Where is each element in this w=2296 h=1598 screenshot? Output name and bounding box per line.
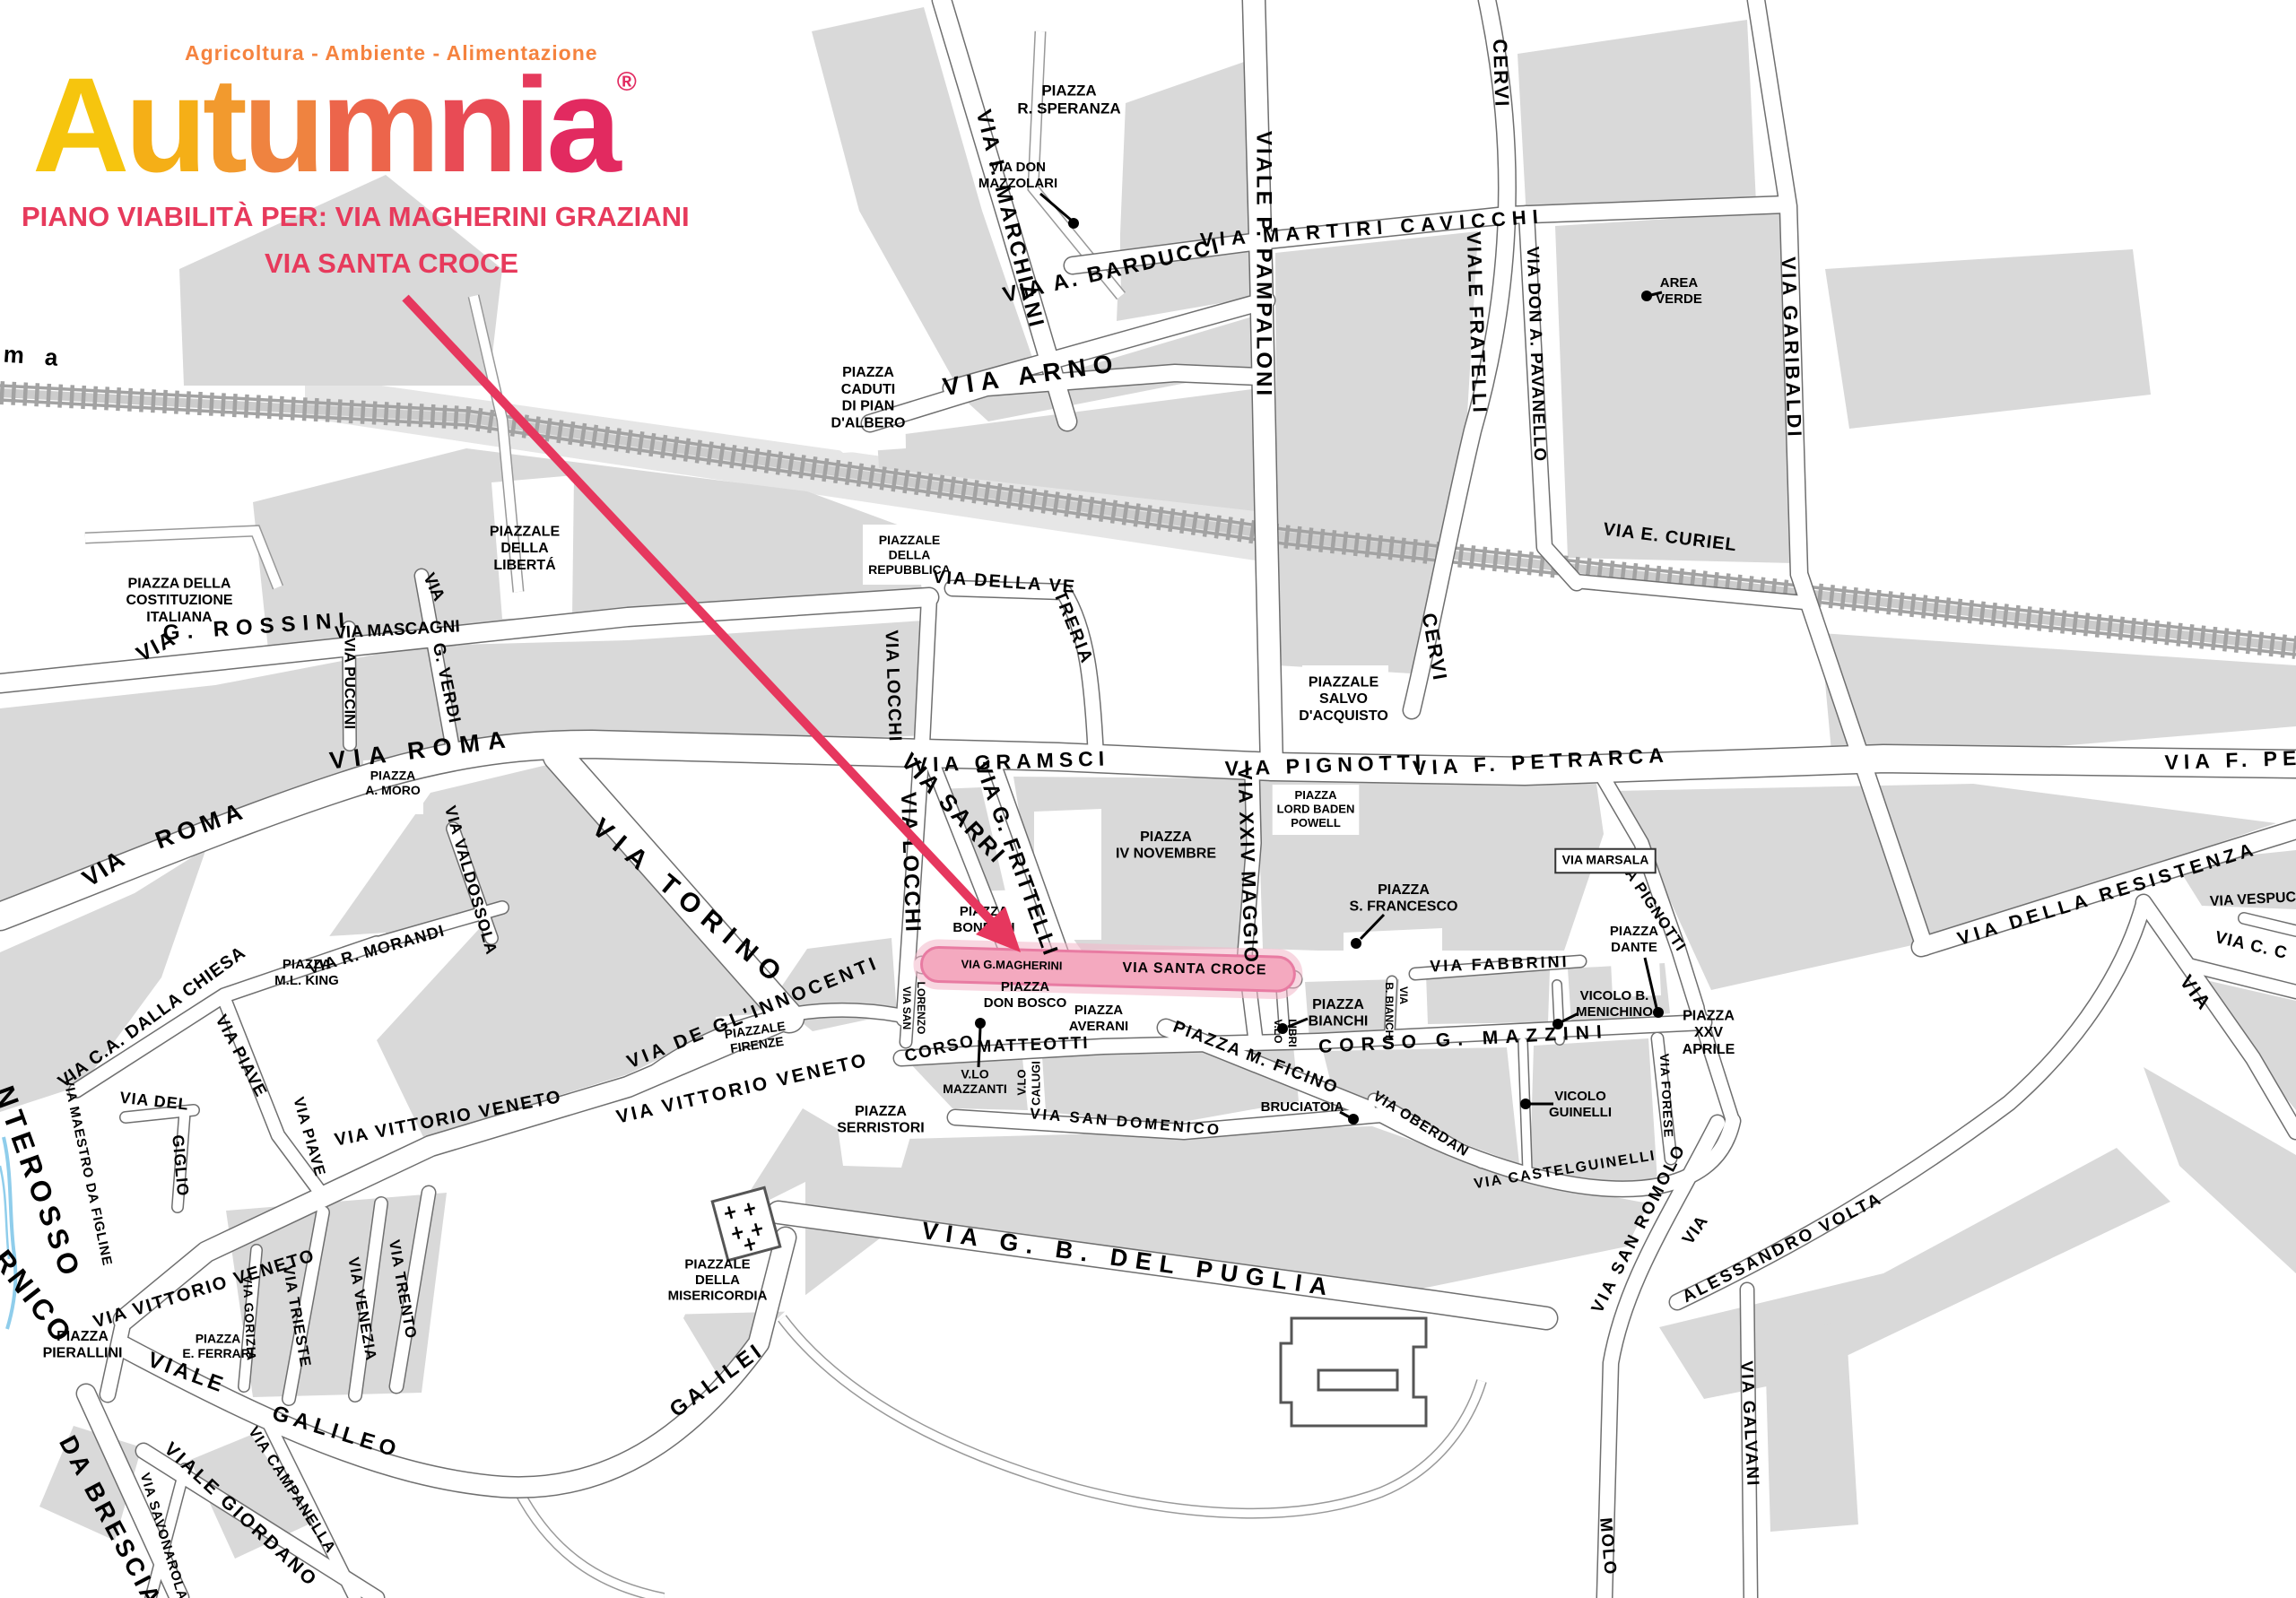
logo-letter: u — [125, 49, 203, 200]
place-label: VICOLOGUINELLI — [1549, 1089, 1612, 1120]
place-label-line: AREA — [1660, 275, 1699, 291]
street-label: LIBRI — [1286, 1019, 1299, 1047]
street-label: VIA SANTA CROCE — [1122, 960, 1266, 978]
logo-letter: a — [546, 49, 616, 200]
place-label-line: BIANCHI — [1309, 1014, 1369, 1029]
street-label: VIA PUCCINI — [342, 638, 359, 729]
place-label-line: PIAZZA — [370, 768, 416, 782]
place-label-line: DELLA — [695, 1272, 740, 1288]
place-label-line: PIAZZA — [283, 957, 331, 972]
place-label-line: VICOLO B. — [1580, 988, 1649, 1003]
plan-title-line2: VIA SANTA CROCE — [265, 248, 518, 280]
poi-dot — [1653, 1007, 1664, 1018]
place-label-line: PIAZZA — [1001, 979, 1049, 994]
place-label-line: E. FERRARI — [182, 1346, 253, 1360]
place-label-line: IV NOVEMBRE — [1116, 847, 1216, 862]
place-label: BRUCIATOIA — [1261, 1099, 1344, 1115]
street-label: VIA F. PET — [2164, 745, 2296, 774]
place-label-line: BRUCIATOIA — [1261, 1099, 1344, 1115]
poi-dot — [1348, 1114, 1359, 1125]
place-label-line: LIBERTÁ — [493, 556, 556, 573]
place-label-line: DI PIAN — [842, 399, 895, 414]
logo-letter: t — [203, 49, 243, 200]
place-label-line: PIAZZA — [1041, 82, 1096, 99]
place-label-line: PIAZZALE — [490, 524, 561, 539]
place-label-line: V.LO — [961, 1066, 988, 1081]
place-label-line: REPUBBLICA — [868, 562, 951, 577]
place-label-line: PIAZZA — [1683, 1008, 1735, 1023]
logo-letter: i — [514, 49, 547, 200]
place-label-line: APRILE — [1683, 1042, 1735, 1057]
place-label-line: MAZZANTI — [943, 1081, 1007, 1096]
place-label-line: PIAZZA — [1140, 829, 1192, 845]
place-label: PIAZZABIANCHI — [1309, 997, 1369, 1029]
place-label-line: A. MORO — [365, 783, 421, 797]
place-label-line: PIAZZA — [1312, 997, 1364, 1012]
place-label-line: GUINELLI — [1549, 1105, 1612, 1120]
place-label: VICOLO B.MENICHINO — [1576, 988, 1653, 1020]
poi-dot — [1068, 218, 1079, 229]
place-label-line: PIAZZA — [842, 365, 894, 380]
place-label-line: CADUTI — [841, 382, 895, 397]
street-label: B. BIANCHI — [1383, 982, 1396, 1040]
place-label-line: PIERALLINI — [43, 1346, 123, 1361]
plan-title-line1: PIANO VIABILITÀ PER: VIA MAGHERINI GRAZI… — [22, 201, 690, 233]
street-label: CALUGI — [1029, 1061, 1042, 1106]
place-label-line: D'ACQUISTO — [1299, 708, 1388, 724]
poi-dot — [975, 1018, 986, 1029]
place-label-line: S. FRANCESCO — [1350, 899, 1458, 915]
place-label: PIAZZAAVERANI — [1069, 1003, 1128, 1034]
logo-letter: n — [436, 49, 514, 200]
place-label: PIAZZADANTE — [1610, 924, 1658, 955]
place-label-line: SERRISTORI — [837, 1121, 925, 1136]
place-label: AREAVERDE — [1656, 275, 1702, 307]
place-label: PIAZZAA. MORO — [365, 768, 421, 797]
place-label-line: PIAZZA — [1074, 1003, 1123, 1018]
street-label: V.LO — [1272, 1020, 1284, 1044]
place-label-line: PIAZZA — [855, 1104, 907, 1119]
place-label-line: PIAZZA — [1378, 882, 1430, 898]
street-label: VIA SAN — [900, 986, 913, 1029]
place-label-line: COSTITUZIONE — [126, 593, 232, 608]
flyer-page: { "header": { "tagline": "Agricoltura - … — [0, 0, 2296, 1598]
street-label: VIA LOCCHI — [896, 792, 925, 934]
place-label-line: ITALIANA — [146, 610, 213, 625]
place-label: VIA MARSALA — [1555, 849, 1655, 873]
street-label: VIA — [1397, 986, 1410, 1004]
autumnia-logo: Autumnia® — [32, 57, 637, 192]
place-label-line: AVERANI — [1069, 1019, 1128, 1034]
street-label: LORENZO — [915, 982, 927, 1035]
place-label-line: PIAZZALE — [879, 533, 940, 547]
place-label-line: DANTE — [1611, 940, 1657, 955]
street-label: VIA LOCCHI — [882, 630, 905, 743]
place-label-line: DELLA — [889, 548, 931, 562]
place-label-line: LORD BADEN — [1277, 802, 1355, 815]
place-label-line: PIAZZALE — [1309, 674, 1379, 690]
place-label: PIAZZAM.L. KING — [274, 957, 339, 988]
place-label-line: VIA DON — [990, 160, 1046, 175]
place-label-line: PIAZZA — [1295, 788, 1338, 802]
place-label-line: VIA MARSALA — [1562, 853, 1649, 867]
street-label: CERVI — [1489, 39, 1514, 109]
place-label-line: SALVO — [1319, 691, 1368, 707]
place-label-line: DON BOSCO — [984, 995, 1067, 1011]
logo-text: Autumnia — [32, 49, 617, 200]
place-label-line: PIAZZA DELLA — [128, 576, 231, 591]
place-label-line: D'ALBERO — [831, 416, 906, 431]
place-label-line: DELLA — [500, 541, 549, 556]
street-label: m a — [3, 341, 66, 372]
poi-dot — [1641, 291, 1652, 301]
place-label-line: MAZZOLARI — [978, 176, 1057, 191]
city-map: VIA I. MARCHIANIVIA A. BARDUCCIVIA ARNOV… — [0, 0, 2296, 1598]
logo-letter: m — [321, 49, 436, 200]
place-label-line: MISERICORDIA — [668, 1289, 768, 1304]
poi-dot — [1520, 1099, 1531, 1109]
registered-mark-icon: ® — [617, 67, 637, 97]
place-label-line: MENICHINO — [1576, 1004, 1653, 1020]
place-label-line: XXV — [1694, 1025, 1723, 1040]
place-label-line: PIAZZA — [196, 1331, 241, 1345]
poi-dot — [1351, 938, 1361, 949]
place-label-line: R. SPERANZA — [1017, 100, 1120, 117]
place-label: PIAZZALORD BADENPOWELL — [1273, 785, 1360, 835]
street-label: VIALE P. PAMPALONI — [1252, 131, 1276, 398]
place-label-line: PIAZZA — [57, 1329, 109, 1344]
place-label-line: VERDE — [1656, 291, 1702, 307]
place-label-line: PIAZZA — [1610, 924, 1658, 939]
logo-letter: u — [243, 49, 321, 200]
place-label-line: POWELL — [1291, 816, 1341, 829]
place-label: VIA DONMAZZOLARI — [978, 160, 1057, 191]
place-label-line: PIAZZALE — [684, 1256, 750, 1272]
street-label: MATTEOTTI — [977, 1034, 1090, 1056]
street-label: VIA G.MAGHERINI — [961, 957, 1062, 972]
place-label-line: VICOLO — [1554, 1089, 1606, 1104]
street-label: V.LO — [1014, 1069, 1028, 1095]
logo-letter: A — [32, 49, 125, 200]
place-label-line: M.L. KING — [274, 973, 339, 988]
